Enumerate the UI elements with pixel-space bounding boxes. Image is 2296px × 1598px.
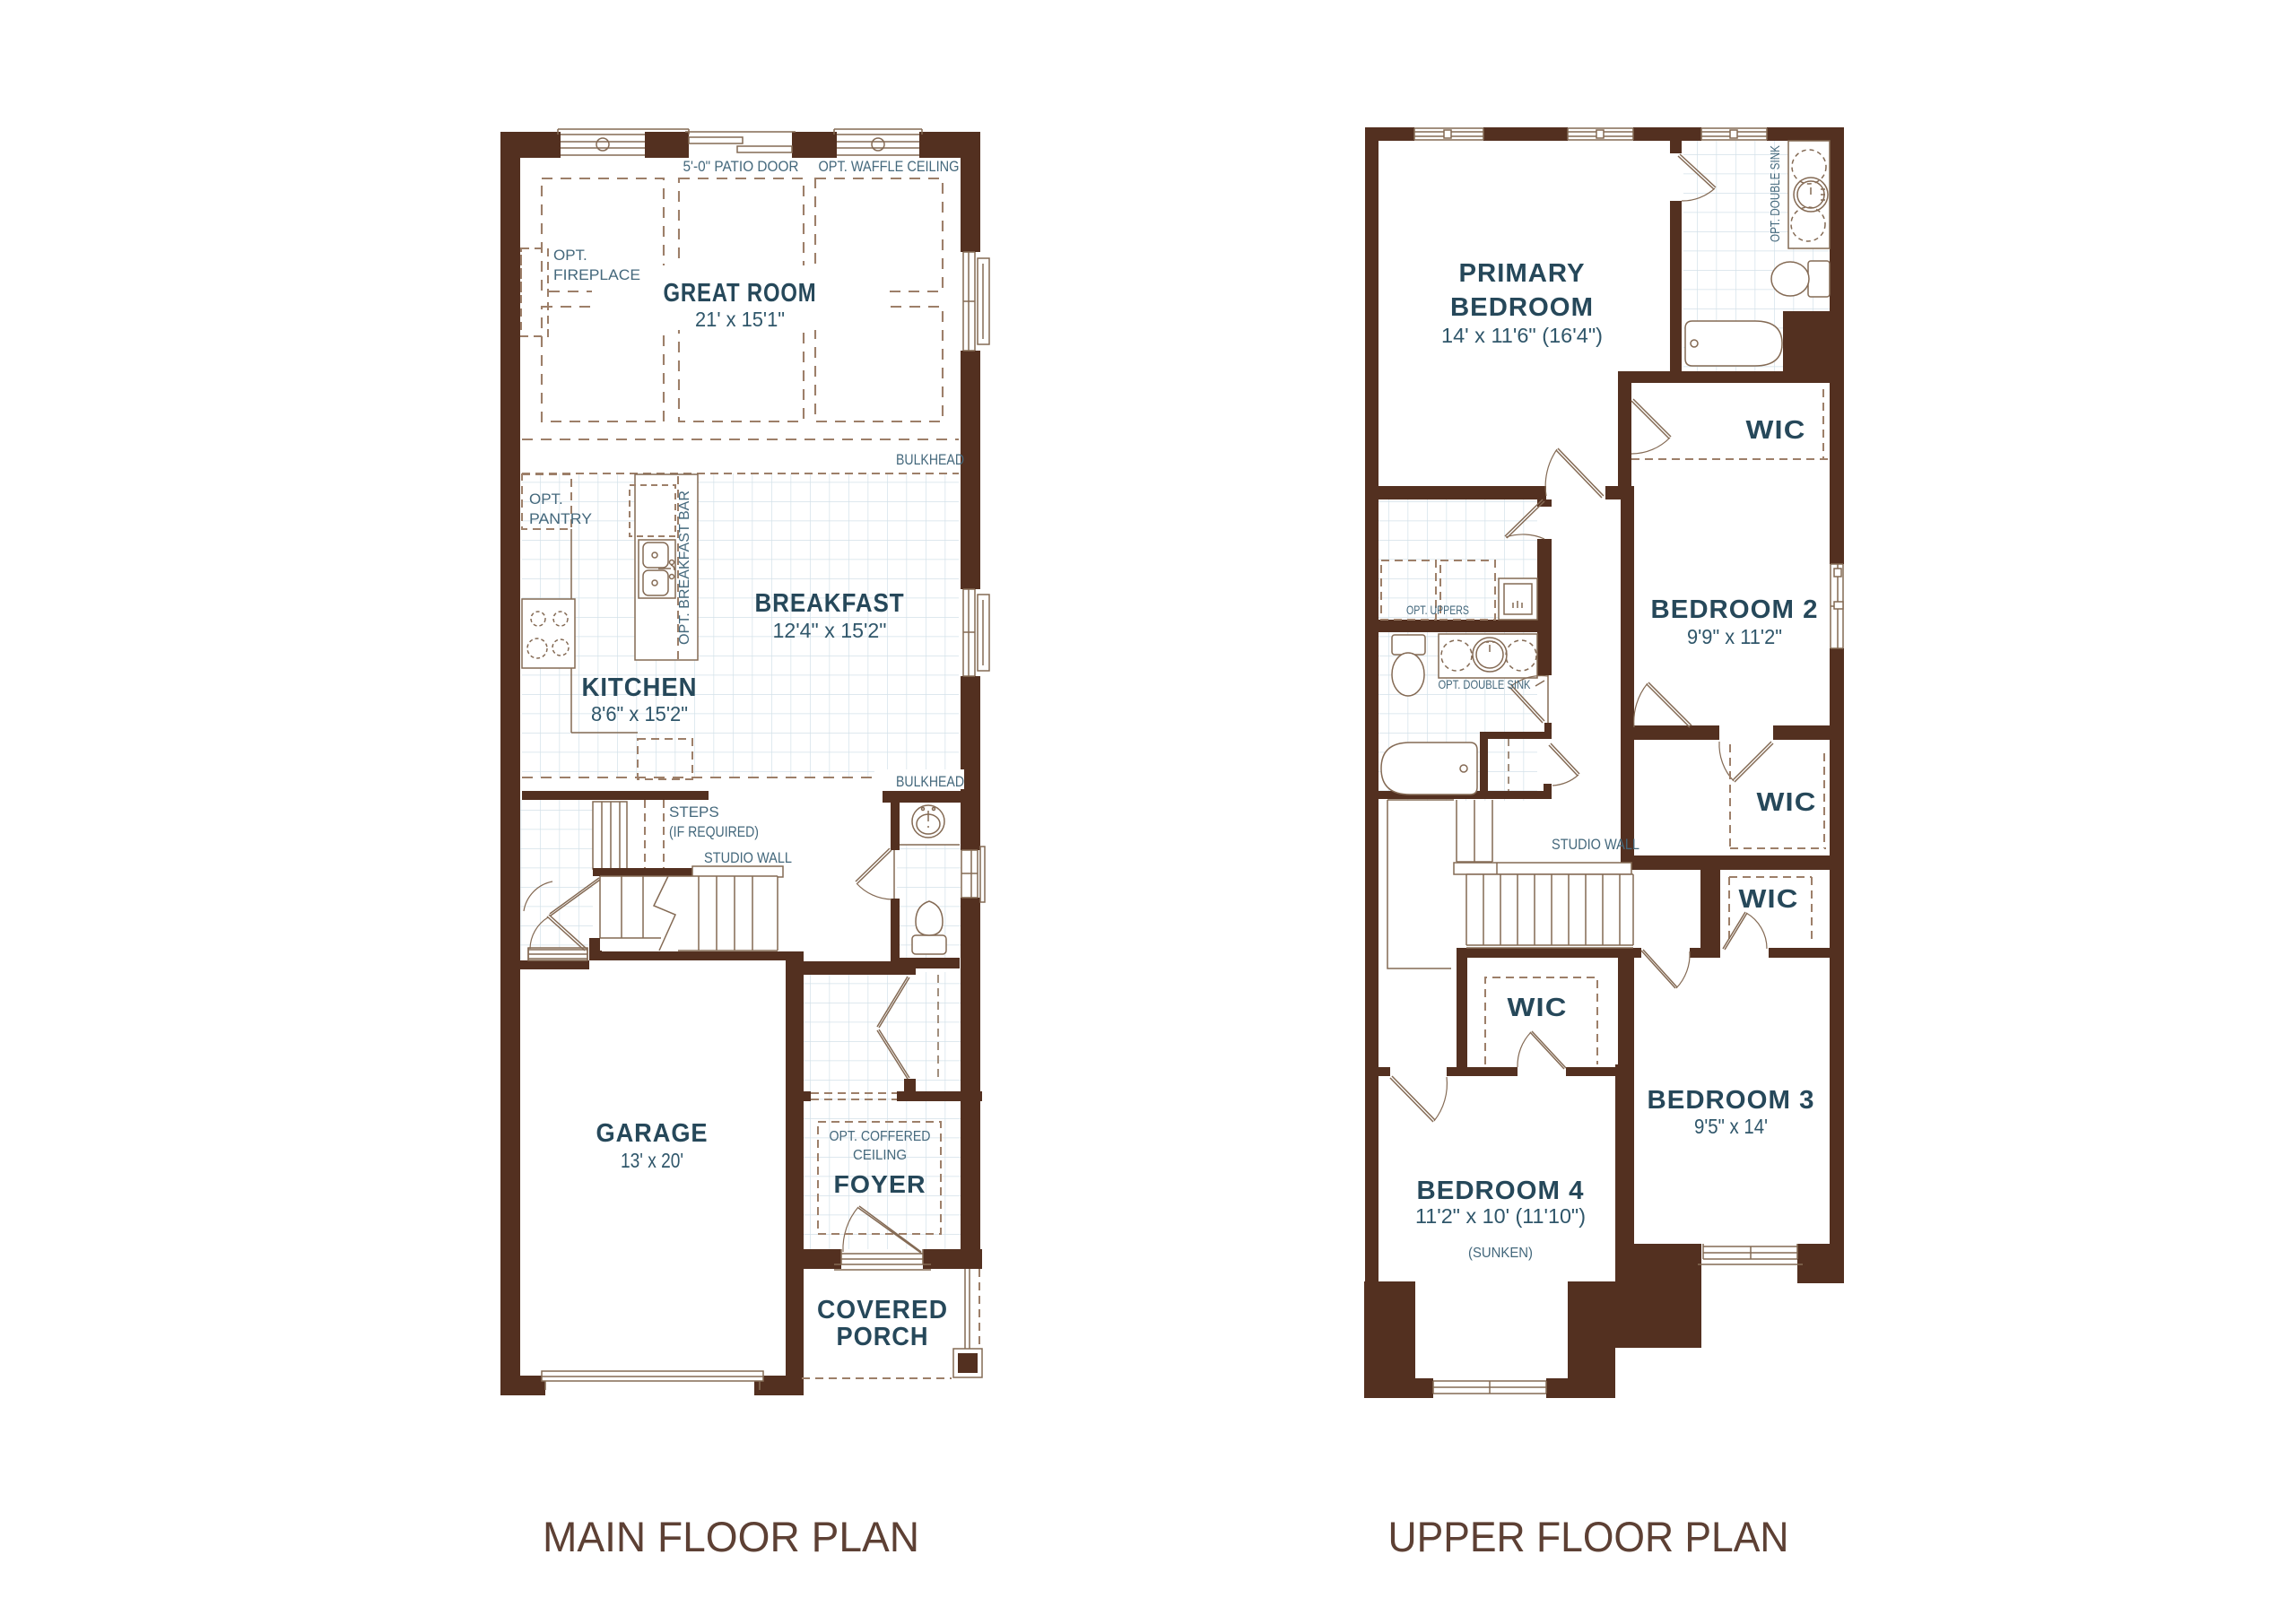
svg-text:STUDIO WALL: STUDIO WALL (1552, 836, 1639, 853)
svg-text:OPT. UPPERS: OPT. UPPERS (1406, 603, 1469, 617)
svg-text:GREAT ROOM: GREAT ROOM (664, 279, 817, 308)
svg-text:WIC: WIC (1757, 788, 1817, 817)
svg-text:8'6" x 15'2": 8'6" x 15'2" (591, 702, 688, 725)
svg-text:BEDROOM: BEDROOM (1450, 293, 1594, 322)
svg-text:BEDROOM 2: BEDROOM 2 (1651, 595, 1819, 624)
svg-text:9'9" x 11'2": 9'9" x 11'2" (1687, 625, 1782, 648)
svg-text:WIC: WIC (1746, 416, 1806, 445)
svg-text:BULKHEAD: BULKHEAD (896, 451, 964, 468)
svg-text:MAIN FLOOR PLAN: MAIN FLOOR PLAN (543, 1513, 919, 1560)
svg-text:FIREPLACE: FIREPLACE (553, 266, 640, 283)
svg-text:FOYER: FOYER (834, 1170, 926, 1198)
svg-text:OPT. DOUBLE SINK: OPT. DOUBLE SINK (1439, 677, 1532, 691)
svg-text:BREAKFAST: BREAKFAST (755, 589, 905, 618)
svg-text:OPT. COFFERED: OPT. COFFERED (830, 1129, 931, 1144)
svg-text:13' x 20': 13' x 20' (621, 1149, 683, 1172)
svg-text:COVERED: COVERED (817, 1296, 948, 1324)
svg-text:BULKHEAD: BULKHEAD (896, 773, 964, 790)
svg-text:PORCH: PORCH (837, 1323, 929, 1351)
svg-text:9'5" x 14': 9'5" x 14' (1694, 1115, 1768, 1138)
svg-text:STUDIO WALL: STUDIO WALL (704, 849, 792, 866)
svg-text:STEPS: STEPS (669, 803, 719, 821)
svg-text:OPT. DOUBLE SINK: OPT. DOUBLE SINK (1769, 145, 1783, 242)
svg-text:UPPER FLOOR PLAN: UPPER FLOOR PLAN (1388, 1513, 1789, 1560)
svg-text:12'4" x 15'2": 12'4" x 15'2" (773, 619, 887, 642)
svg-text:OPT.: OPT. (553, 247, 587, 264)
svg-text:BEDROOM 4: BEDROOM 4 (1417, 1177, 1585, 1205)
svg-text:WIC: WIC (1508, 994, 1568, 1022)
svg-text:11'2" x 10' (11'10"): 11'2" x 10' (11'10") (1415, 1204, 1586, 1228)
svg-text:OPT.: OPT. (529, 491, 563, 508)
svg-text:5'-0" PATIO DOOR: 5'-0" PATIO DOOR (683, 158, 799, 175)
svg-text:(IF REQUIRED): (IF REQUIRED) (669, 823, 759, 840)
svg-text:OPT. WAFFLE CEILING: OPT. WAFFLE CEILING (819, 158, 960, 175)
svg-text:(SUNKEN): (SUNKEN) (1468, 1246, 1533, 1261)
svg-text:CEILING: CEILING (853, 1148, 907, 1163)
svg-text:21' x 15'1": 21' x 15'1" (695, 308, 785, 331)
svg-text:BEDROOM 3: BEDROOM 3 (1648, 1086, 1815, 1115)
svg-text:KITCHEN: KITCHEN (582, 673, 698, 702)
svg-text:WIC: WIC (1739, 885, 1799, 914)
svg-text:PRIMARY: PRIMARY (1459, 259, 1586, 288)
svg-text:GARAGE: GARAGE (596, 1119, 709, 1148)
svg-text:14' x 11'6" (16'4"): 14' x 11'6" (16'4") (1441, 324, 1603, 347)
svg-text:OPT. BREAKFAST BAR: OPT. BREAKFAST BAR (677, 491, 692, 645)
svg-text:PANTRY: PANTRY (529, 510, 592, 527)
